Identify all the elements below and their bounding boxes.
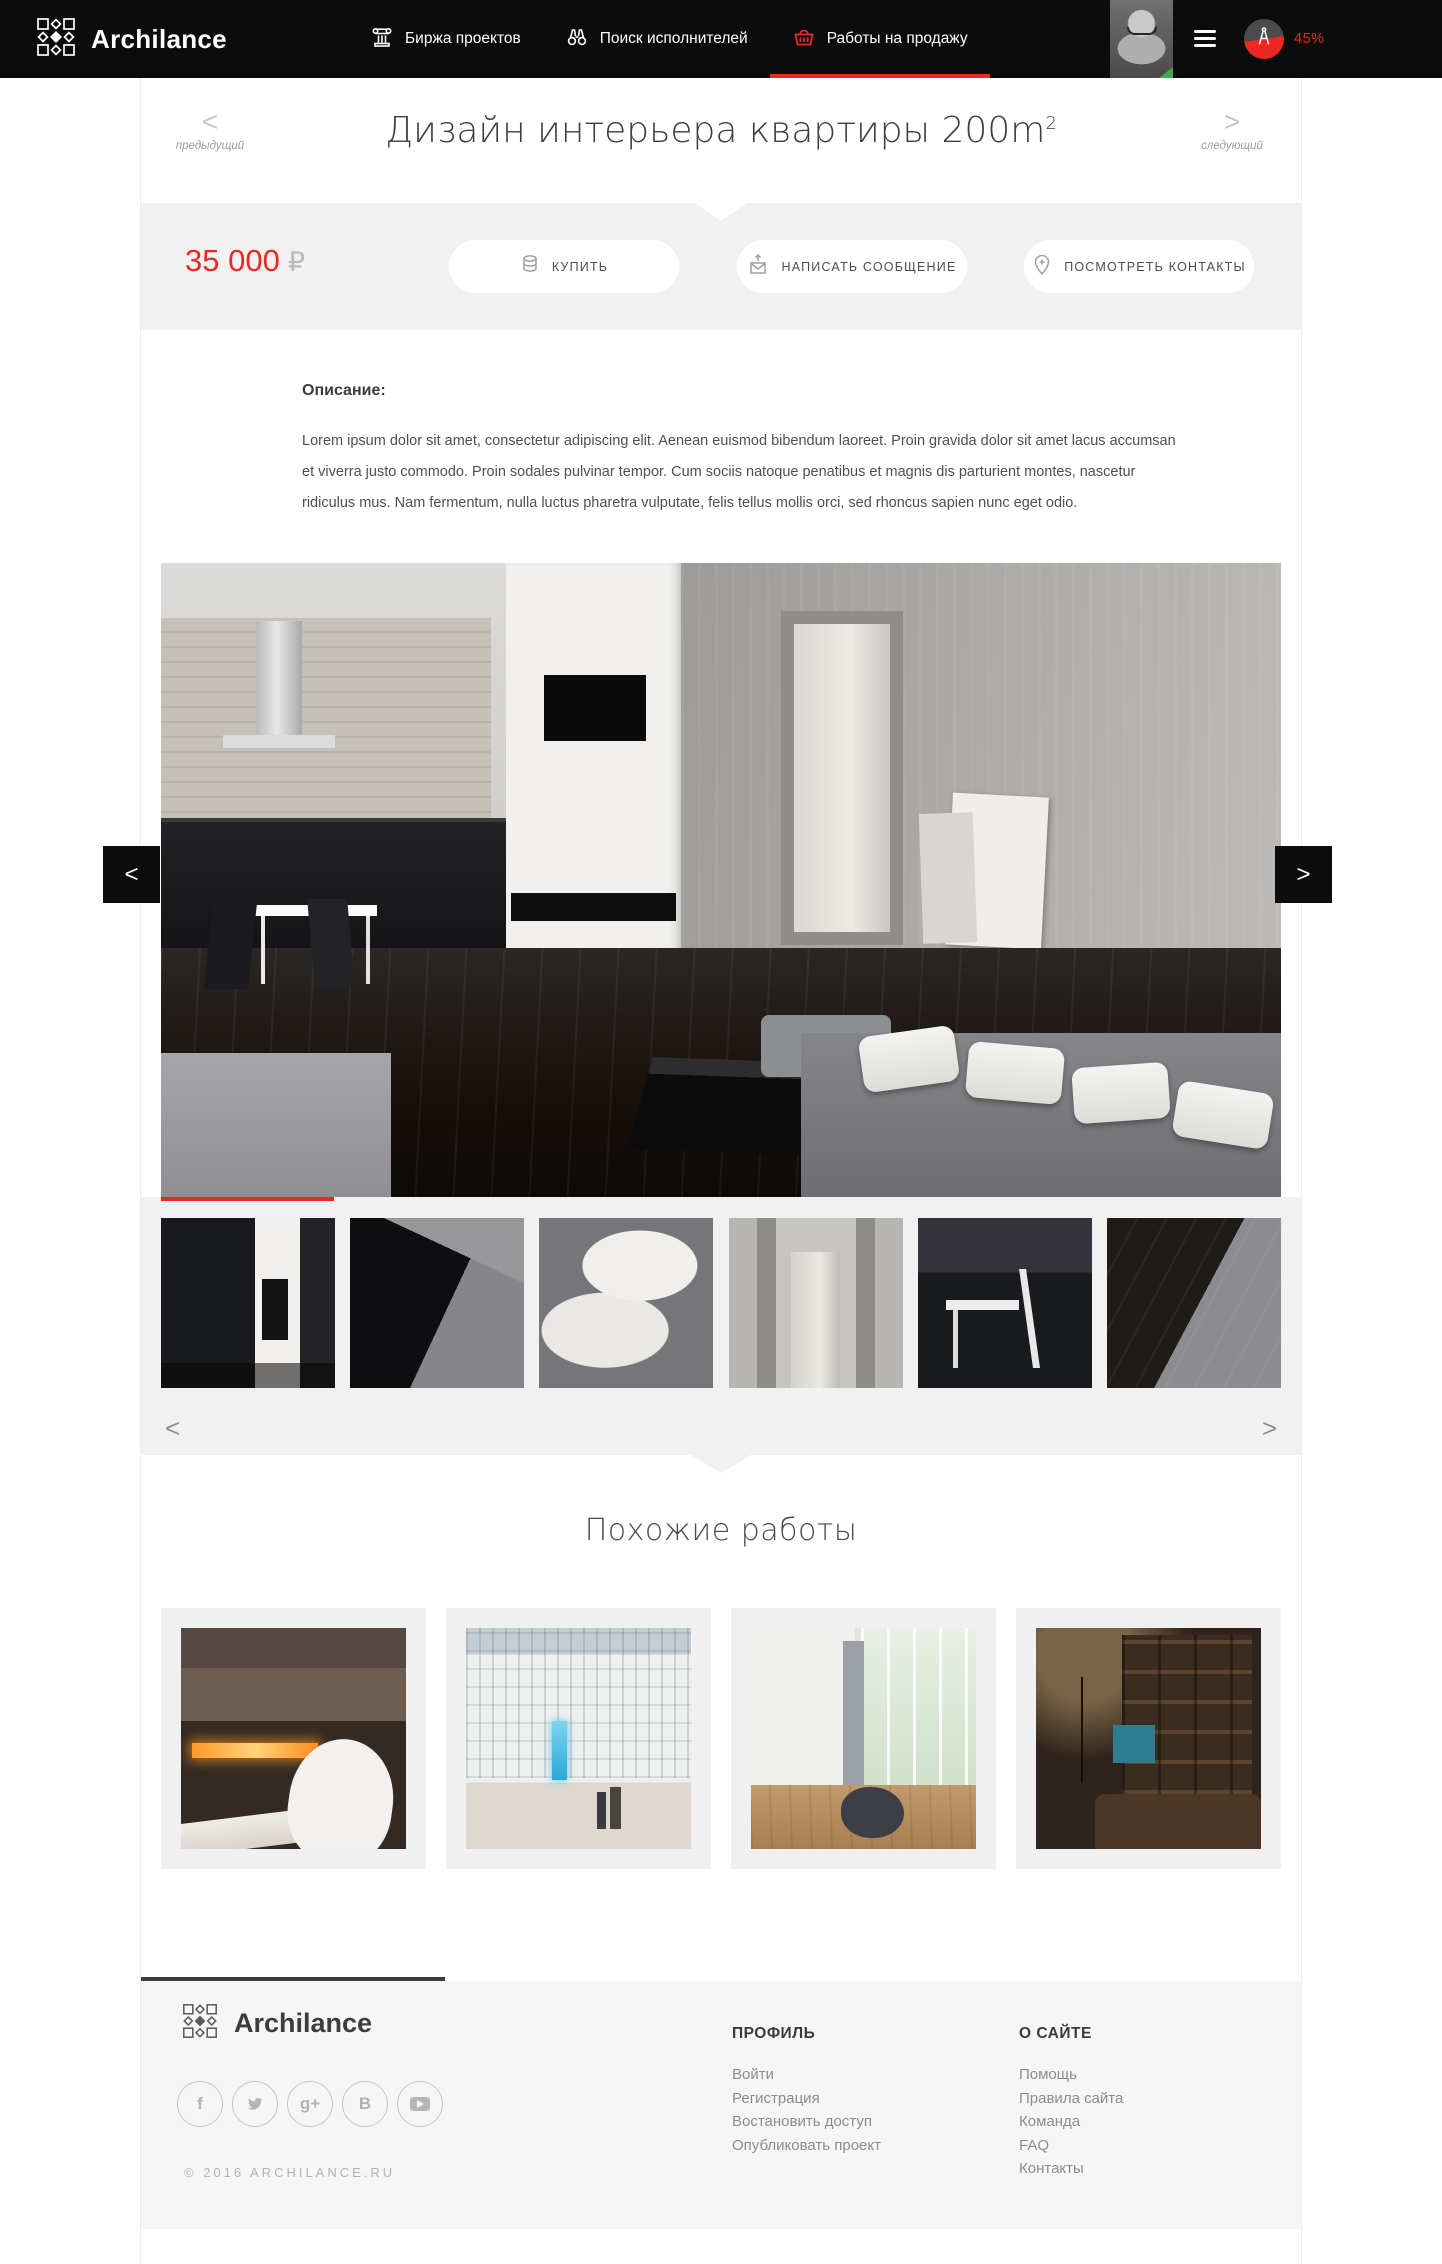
nav-item-label: Биржа проектов [405,30,521,48]
page-title: Дизайн интерьера квартиры 200m2 [141,78,1301,151]
user-avatar[interactable] [1110,0,1173,78]
similar-work-card-3[interactable] [731,1608,996,1869]
nav-item-works-for-sale[interactable]: Работы на продажу [770,0,990,78]
description-text: Lorem ipsum dolor sit amet, consectetur … [302,426,1182,519]
prev-work-button[interactable]: < предыдущий [155,106,265,152]
thumb-prev-icon: < [165,1413,180,1443]
facebook-glyph: f [197,2094,203,2114]
thumb-tv [262,1279,288,1340]
gallery-next-button[interactable]: > [1275,846,1332,903]
footer-brand-name: Archilance [234,2008,372,2039]
buy-button[interactable]: КУПИТЬ [449,240,679,293]
curtain [843,1641,863,1787]
photo-cooker-hood [256,621,302,739]
photo-doorway [781,611,903,945]
bottom-strip [141,2229,1301,2264]
footer-column-heading: О САЙТЕ [1019,2025,1123,2043]
footer-link-help[interactable]: Помощь [1019,2063,1123,2087]
leather-sofa [1095,1794,1262,1849]
similar-image-library [1036,1628,1261,1849]
footer-link-contacts[interactable]: Контакты [1019,2157,1123,2181]
thumb-next-icon: > [1262,1413,1277,1443]
buy-button-label: КУПИТЬ [552,260,608,274]
similar-image-atrium [466,1628,691,1849]
similar-work-card-1[interactable] [161,1608,426,1869]
thumbnail-3[interactable] [539,1218,713,1388]
glowing-column [552,1721,568,1781]
photo-table-leg [261,916,265,984]
photo-stone-wall [161,618,491,828]
thumbnail-4[interactable] [729,1218,903,1388]
similar-works-row [161,1608,1281,1869]
profile-progress-percent: 45% [1294,31,1325,47]
bean-bag [841,1787,904,1838]
top-nav-bar: Archilance Биржа проектов Поиск испо [0,0,1442,78]
person [597,1792,606,1830]
thumbnails-next-button[interactable]: > [1262,1415,1277,1441]
photo-pillow [1071,1062,1171,1125]
next-label: следующий [1177,140,1287,152]
footer-link-rules[interactable]: Правила сайта [1019,2087,1123,2111]
thumb-door-opening [791,1252,840,1388]
send-message-label: НАПИСАТЬ СООБЩЕНИЕ [781,260,956,274]
similar-image-fireplace [181,1628,406,1849]
copyright: © 2016 ARCHILANCE.RU [184,2165,395,2180]
footer-link-faq[interactable]: FAQ [1019,2134,1123,2158]
similar-work-card-4[interactable] [1016,1608,1281,1869]
drafting-compass-icon [1253,26,1275,53]
footer-link-restore-access[interactable]: Востановить доступ [732,2110,881,2134]
gallery-prev-icon: < [124,861,138,889]
poster [1113,1725,1156,1763]
similar-works-section: Похожие работы [141,1455,1301,1977]
thumb-table-leg [953,1310,958,1368]
person [610,1787,621,1829]
floor-lamp [1081,1677,1083,1783]
social-links: f g+ В [177,2081,443,2127]
gallery-section: < > [141,563,1301,1197]
thumbnail-strip: < > [141,1197,1301,1455]
footer-column-profile: ПРОФИЛЬ Войти Регистрация Востановить до… [732,2025,881,2157]
send-message-button[interactable]: НАПИСАТЬ СООБЩЕНИЕ [737,240,967,293]
thumbnail-6[interactable] [1107,1218,1281,1388]
google-plus-icon[interactable]: g+ [287,2081,333,2127]
gallery-progress-indicator [161,1197,334,1201]
thumbnail-1[interactable] [161,1218,335,1388]
footer-brand[interactable]: Archilance [182,2003,372,2044]
footer-link-team[interactable]: Команда [1019,2110,1123,2134]
thumb-floor [161,1363,335,1389]
glass-facade [466,1628,691,1778]
currency-ruble: ₽ [288,247,305,277]
price: 35 000₽ [185,243,305,279]
twitter-icon[interactable] [232,2081,278,2127]
nav-item-find-performers[interactable]: Поиск исполнителей [543,0,770,78]
purchase-bar: 35 000₽ КУПИТЬ НАПИСАТЬ СООБЩЕНИЕ [141,203,1301,330]
avatar-status-corner [1159,67,1173,78]
vk-glyph: В [359,2094,371,2114]
photo-tv-console [511,893,676,921]
brand-logo[interactable]: Archilance [36,0,227,78]
section-notch [691,1455,751,1473]
view-contacts-label: ПОСМОТРЕТЬ КОНТАКТЫ [1064,260,1246,274]
title-bar: < предыдущий Дизайн интерьера квартиры 2… [141,78,1301,203]
similar-work-card-2[interactable] [446,1608,711,1869]
footer-column-heading: ПРОФИЛЬ [732,2025,881,2043]
envelope-up-icon [747,254,769,279]
description-heading: Описание: [302,382,1301,400]
photo-canvas-small [919,812,978,944]
tall-window [855,1628,977,1796]
thumb-chair [1019,1269,1040,1368]
footer-link-register[interactable]: Регистрация [732,2087,881,2111]
photo-tv [544,675,646,741]
archilance-logo-icon [182,2003,218,2044]
vk-icon[interactable]: В [342,2081,388,2127]
coins-icon [520,254,540,279]
nav-item-label: Работы на продажу [827,30,968,48]
photo-table-leg [366,916,370,984]
thumbnail-2[interactable] [350,1218,524,1388]
similar-image-living-room [751,1628,976,1849]
hamburger-menu-icon[interactable] [1194,30,1216,47]
facebook-icon[interactable]: f [177,2081,223,2127]
content-column: < предыдущий Дизайн интерьера квартиры 2… [140,78,1302,2264]
archilance-logo-icon [36,17,76,62]
main-work-image[interactable] [161,563,1281,1197]
thumb-table [946,1300,1019,1310]
nav-item-label: Поиск исполнителей [600,30,748,48]
footer: Archilance f g+ В © 2016 ARCHILANCE.RU П… [141,1981,1301,2229]
photo-pillow [965,1041,1066,1105]
map-pin-icon [1032,254,1052,279]
thumbnail-5[interactable] [918,1218,1092,1388]
gallery-next-icon: > [1296,861,1310,889]
nav-item-projects-exchange[interactable]: Биржа проектов [348,0,543,78]
photo-left-sofa [161,1053,391,1197]
basket-icon [792,25,816,54]
footer-link-login[interactable]: Войти [732,2063,881,2087]
next-arrow-icon: > [1224,106,1240,137]
youtube-icon[interactable] [397,2081,443,2127]
title-superscript: 2 [1045,113,1056,134]
thumbnails-prev-button[interactable]: < [165,1415,180,1441]
price-value: 35 000 [185,243,280,278]
photo-chair [307,899,355,987]
binoculars-icon [565,25,589,54]
avatar-glasses [1127,27,1157,35]
column-icon [370,25,394,54]
thumbnail-row [161,1218,1281,1388]
footer-link-publish-project[interactable]: Опубликовать проект [732,2134,881,2158]
description-section: Описание: Lorem ipsum dolor sit amet, co… [141,330,1301,563]
main-menu: Биржа проектов Поиск исполнителей Работы… [348,0,990,78]
prev-arrow-icon: < [202,106,218,137]
profile-progress-badge[interactable] [1244,19,1284,59]
footer-column-about: О САЙТЕ Помощь Правила сайта Команда FAQ… [1019,2025,1123,2181]
google-plus-glyph: g+ [300,2094,320,2114]
top-notch [695,203,747,221]
youtube-play-shape [410,2097,430,2111]
view-contacts-button[interactable]: ПОСМОТРЕТЬ КОНТАКТЫ [1024,240,1254,293]
brand-name: Archilance [91,24,227,55]
fireplace-flames [192,1743,318,1758]
book-shelves [1122,1635,1253,1794]
gallery-prev-button[interactable]: < [103,846,160,903]
photo-hood-plate [223,735,335,748]
prev-label: предыдущий [155,140,265,152]
next-work-button[interactable]: > следующий [1177,106,1287,152]
